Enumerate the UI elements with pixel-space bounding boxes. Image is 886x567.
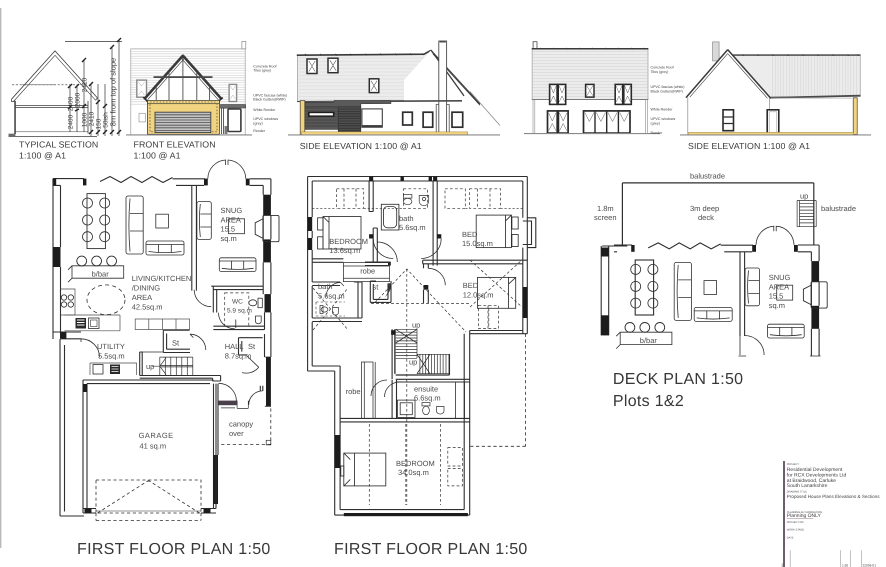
svg-text:balustrade: balustrade (690, 172, 725, 181)
svg-text:8m from top of slope: 8m from top of slope (109, 58, 118, 126)
svg-text:5.5sq.m: 5.5sq.m (98, 352, 125, 361)
svg-text:Render: Render (253, 129, 266, 133)
svg-text:8.7sq.m: 8.7sq.m (225, 352, 252, 361)
svg-text:up: up (146, 362, 154, 371)
svg-text:2400: 2400 (68, 114, 75, 129)
svg-text:3m deep: 3m deep (690, 204, 719, 213)
svg-text:LIVING/KITCHEN: LIVING/KITCHEN (132, 274, 192, 283)
svg-text:BEDROOM: BEDROOM (329, 237, 368, 246)
svg-text:2410: 2410 (82, 77, 89, 92)
svg-text:balustrade: balustrade (821, 204, 856, 213)
svg-text:5.6sq.m: 5.6sq.m (399, 223, 426, 232)
svg-text:sq.m: sq.m (221, 234, 237, 243)
svg-text:Tiles (grey): Tiles (grey) (651, 70, 669, 74)
svg-text:SNUG: SNUG (769, 273, 791, 282)
svg-text:BEDROOM: BEDROOM (396, 459, 435, 468)
svg-text:1000: 1000 (82, 112, 89, 127)
svg-text:WC: WC (232, 299, 243, 306)
svg-text:5.6sq.m: 5.6sq.m (318, 292, 345, 301)
svg-text:PROJECT NO: PROJECT NO (787, 521, 804, 524)
svg-text:1:100 @ A1: 1:100 @ A1 (19, 151, 66, 161)
svg-text:up: up (412, 321, 420, 330)
svg-text:12.0sq.m: 12.0sq.m (463, 291, 494, 300)
svg-text:over: over (229, 429, 244, 438)
svg-text:13.6sq.m: 13.6sq.m (329, 246, 360, 255)
svg-text:FIRST FLOOR PLAN 1:50: FIRST FLOOR PLAN 1:50 (334, 541, 528, 558)
svg-text:/DINING: /DINING (132, 284, 161, 293)
svg-text:Proposed House Plans Elevation: Proposed House Plans Elevations & Sectio… (787, 494, 880, 499)
svg-text:22006-01: 22006-01 (863, 564, 877, 567)
svg-text:Render: Render (651, 131, 664, 135)
svg-text:(grey): (grey) (253, 121, 262, 125)
svg-text:screen: screen (594, 213, 617, 222)
svg-text:ensuite: ensuite (414, 385, 438, 394)
svg-text:150: 150 (96, 118, 103, 129)
svg-text:6.6sq.m: 6.6sq.m (414, 394, 441, 403)
svg-text:15.0sq.m: 15.0sq.m (462, 239, 493, 248)
svg-text:1.8m: 1.8m (597, 204, 614, 213)
svg-text:b/bar: b/bar (640, 336, 658, 345)
svg-text:Black Gutters(RWP): Black Gutters(RWP) (253, 98, 285, 102)
svg-text:15.5: 15.5 (221, 225, 236, 234)
svg-text:2000: 2000 (75, 92, 82, 107)
svg-text:St: St (248, 342, 256, 351)
svg-text:Plots 1&2: Plots 1&2 (613, 393, 684, 410)
svg-text:2410: 2410 (89, 111, 96, 126)
svg-text:sq.m: sq.m (769, 301, 785, 310)
svg-text:GARAGE: GARAGE (139, 431, 174, 440)
svg-text:robe: robe (360, 267, 375, 276)
svg-text:WORK STAGE: WORK STAGE (787, 529, 805, 532)
svg-text:up: up (800, 192, 808, 201)
svg-text:1:100 @ A1: 1:100 @ A1 (134, 151, 181, 161)
svg-text:SNUG: SNUG (221, 206, 243, 215)
svg-text:White Render: White Render (651, 108, 674, 112)
svg-text:(grey): (grey) (651, 121, 660, 125)
svg-text:SIDE ELEVATION 1:100 @ A1: SIDE ELEVATION 1:100 @ A1 (688, 141, 810, 151)
svg-text:bath: bath (399, 214, 414, 223)
svg-text:34.0sq.m: 34.0sq.m (398, 468, 429, 477)
svg-text:South Lanarkshire: South Lanarkshire (787, 483, 828, 489)
svg-text:St: St (172, 339, 180, 348)
svg-text:41 sq.m: 41 sq.m (140, 442, 167, 451)
svg-text:AREA: AREA (132, 293, 152, 302)
svg-text:canopy: canopy (229, 420, 253, 429)
svg-text:Tiles (grey): Tiles (grey) (253, 69, 271, 73)
svg-text:deck: deck (698, 213, 714, 222)
svg-text:FRONT ELEVATION: FRONT ELEVATION (134, 140, 216, 150)
svg-text:1:50: 1:50 (842, 564, 848, 567)
svg-text:b/bar: b/bar (92, 270, 110, 279)
svg-text:robe: robe (346, 387, 361, 396)
svg-text:15.5: 15.5 (769, 292, 784, 301)
svg-text:SIDE ELEVATION 1:100 @ A1: SIDE ELEVATION 1:100 @ A1 (300, 141, 422, 151)
svg-text:AREA: AREA (221, 215, 241, 224)
svg-text:BED: BED (463, 281, 479, 290)
svg-text:PROJECT: PROJECT (787, 463, 800, 466)
svg-text:bath: bath (318, 282, 333, 291)
svg-text:UTILITY: UTILITY (97, 342, 125, 351)
svg-text:DATE: DATE (787, 537, 794, 540)
svg-text:5.9 sq.m: 5.9 sq.m (227, 308, 252, 315)
svg-text:up: up (409, 358, 417, 367)
svg-text:FIRST FLOOR PLAN 1:50: FIRST FLOOR PLAN 1:50 (77, 541, 271, 558)
svg-text:White Render: White Render (253, 108, 276, 112)
svg-text:BED: BED (462, 230, 478, 239)
svg-text:DECK PLAN 1:50: DECK PLAN 1:50 (613, 371, 743, 388)
svg-text:HALL: HALL (225, 342, 244, 351)
svg-text:2400: 2400 (68, 96, 75, 111)
svg-text:st: st (373, 283, 380, 292)
svg-text:Planning ONLY: Planning ONLY (787, 513, 822, 519)
svg-text:42.5sq.m: 42.5sq.m (132, 303, 163, 312)
svg-text:AREA: AREA (769, 282, 789, 291)
svg-text:Black Gutters(RWP): Black Gutters(RWP) (651, 89, 683, 93)
svg-text:TYPICAL SECTION: TYPICAL SECTION (19, 140, 98, 150)
